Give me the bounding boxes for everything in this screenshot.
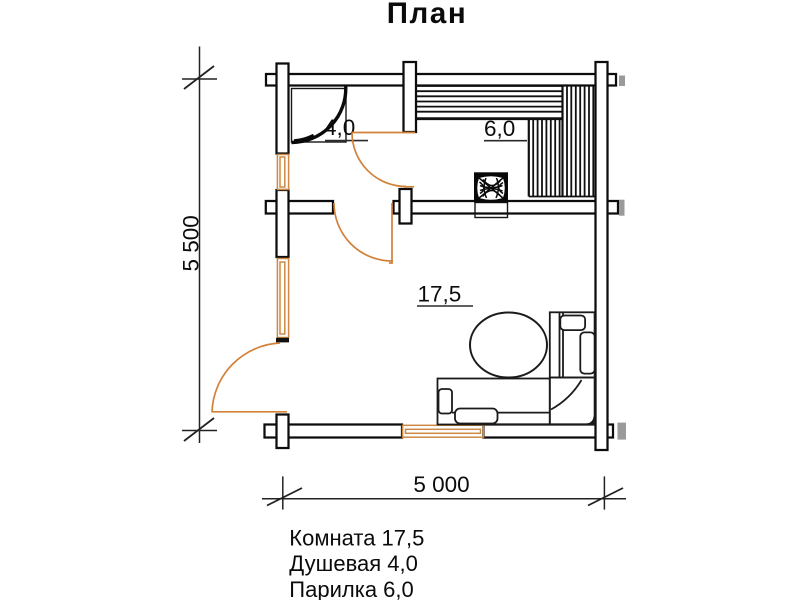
svg-text:4,0: 4,0 <box>324 115 355 140</box>
svg-text:Душевая 4,0: Душевая 4,0 <box>289 551 418 576</box>
svg-text:5 000: 5 000 <box>413 472 469 497</box>
svg-text:Парилка 6,0: Парилка 6,0 <box>289 577 413 600</box>
svg-text:17,5: 17,5 <box>418 282 462 307</box>
svg-text:6,0: 6,0 <box>484 116 515 141</box>
svg-text:5 500: 5 500 <box>179 215 204 271</box>
svg-text:Комната 17,5: Комната 17,5 <box>289 525 424 550</box>
svg-text:План: План <box>387 0 468 30</box>
